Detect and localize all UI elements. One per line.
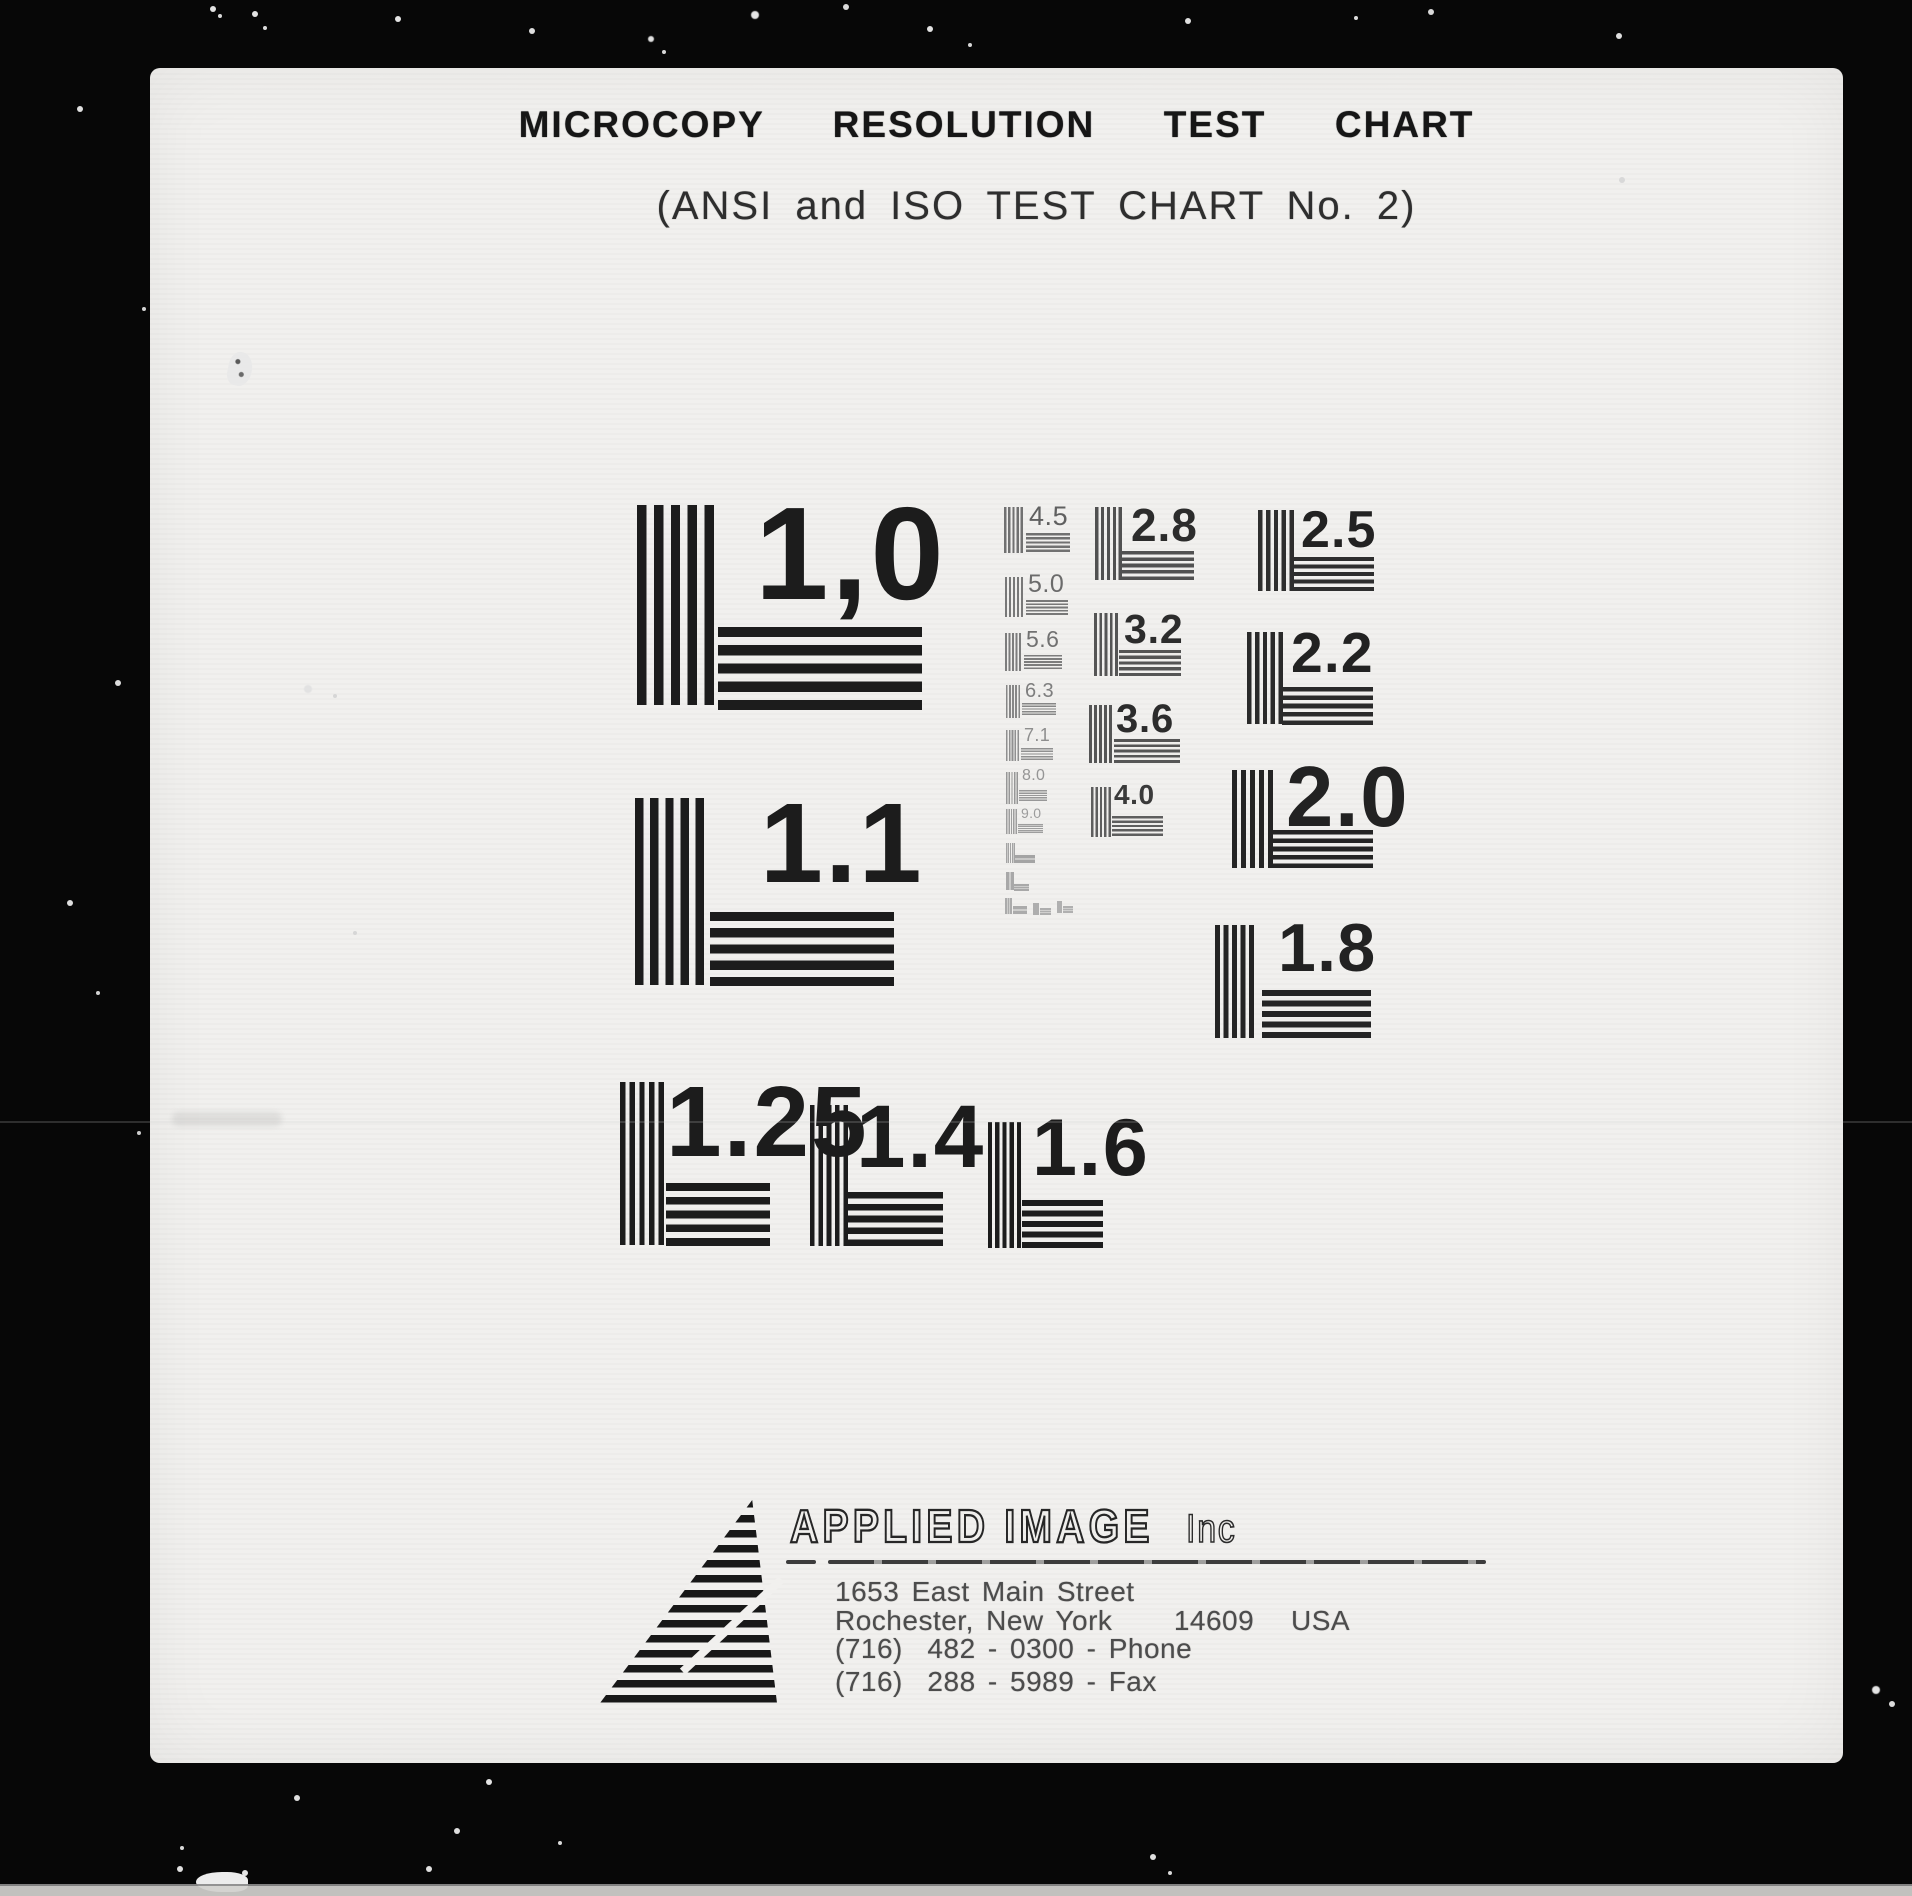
pattern-horizontal-bars [1040,908,1051,915]
pattern-horizontal-bars [1013,906,1027,914]
company-name-text: APPLIED IMAGE [790,1500,1154,1552]
pattern-vertical-bars [1006,685,1020,718]
pattern-vertical-bars [1005,898,1012,914]
pattern-number: 1.4 [856,1092,985,1181]
pattern-number: 7.1 [1024,726,1050,744]
pattern-horizontal-bars [848,1192,943,1246]
pattern-number: 4.0 [1114,781,1155,809]
pattern-horizontal-bars [1021,748,1053,760]
pattern-horizontal-bars [1022,703,1056,715]
pattern-vertical-bars [1091,787,1111,837]
pattern-vertical-bars [1006,872,1014,890]
pattern-vertical-bars [1215,925,1254,1038]
pattern-vertical-bars [637,505,714,705]
pattern-vertical-bars [1258,510,1294,591]
pattern-horizontal-bars [1014,884,1029,891]
pattern-vertical-bars [1033,903,1039,915]
pattern-vertical-bars [1006,730,1019,761]
pattern-vertical-bars [635,798,704,985]
pattern-number: 1,0 [755,488,946,620]
pattern-vertical-bars [1247,632,1283,724]
pattern-vertical-bars [988,1122,1021,1248]
pattern-vertical-bars [1004,507,1023,553]
dust-specks [0,0,4,4]
address-line-fax: (716) 288 - 5989 - Fax [835,1668,1157,1696]
pattern-number: 2.2 [1291,625,1374,682]
pattern-vertical-bars [1006,772,1018,804]
pattern-horizontal-bars [718,627,922,710]
pattern-vertical-bars [1006,843,1015,863]
pattern-horizontal-bars [710,912,894,986]
pattern-number: 5.6 [1026,628,1059,651]
pattern-number: 5.0 [1028,572,1064,597]
pattern-horizontal-bars [1026,600,1068,615]
logo-underline-dash [786,1560,816,1564]
address-line-phone: (716) 482 - 0300 - Phone [835,1635,1192,1663]
pattern-vertical-bars [1005,633,1021,671]
pattern-horizontal-bars [1262,990,1371,1038]
company-suffix: Inc [1186,1507,1236,1551]
logo-underline [828,1560,1486,1564]
pattern-vertical-bars [620,1082,664,1245]
pattern-vertical-bars [1094,613,1118,676]
pattern-horizontal-bars [1112,816,1163,836]
company-name: APPLIED IMAGEInc [790,1503,1237,1549]
pattern-vertical-bars [1057,901,1062,913]
pattern-horizontal-bars [1063,906,1073,913]
pattern-vertical-bars [1089,705,1112,763]
pattern-number: 1.8 [1278,914,1377,982]
pattern-number: 1.1 [760,787,924,900]
pattern-number: 4.5 [1029,503,1068,530]
pattern-horizontal-bars [1282,687,1373,725]
pattern-horizontal-bars [1015,855,1035,863]
pattern-number: 3.6 [1116,699,1174,739]
address-line-street: 1653 East Main Street [835,1578,1135,1606]
pattern-number: 2.8 [1131,502,1198,548]
pattern-horizontal-bars [1114,739,1180,763]
pattern-horizontal-bars [1018,824,1043,833]
address-line-city: Rochester, New York 14609 USA [835,1607,1350,1635]
bottom-edge-strip [0,1884,1912,1896]
pattern-number: 2.0 [1286,755,1409,840]
pattern-vertical-bars [1005,577,1023,617]
pattern-number: 3.2 [1124,609,1183,650]
scanline-artifact [0,1121,1912,1123]
pattern-number: 2.5 [1301,504,1376,556]
pattern-number: 8.0 [1022,768,1045,784]
pattern-number: 9.0 [1021,806,1041,820]
pattern-horizontal-bars [1026,533,1070,552]
pattern-horizontal-bars [1294,557,1374,591]
pattern-vertical-bars [1095,507,1122,580]
pattern-vertical-bars [1006,809,1017,834]
pattern-horizontal-bars [1024,655,1062,669]
pattern-horizontal-bars [1119,650,1181,676]
pattern-horizontal-bars [1122,551,1194,580]
paper-smudge [172,1112,282,1126]
pattern-number: 6.3 [1025,681,1054,701]
pattern-horizontal-bars [666,1183,770,1246]
pattern-horizontal-bars [1019,790,1047,801]
pattern-vertical-bars [810,1105,848,1246]
pattern-vertical-bars [1232,770,1273,868]
pattern-horizontal-bars [1022,1200,1103,1248]
scanned-microfilm-frame: { "document": { "title": "MICROCOPY RESO… [0,0,1912,1896]
